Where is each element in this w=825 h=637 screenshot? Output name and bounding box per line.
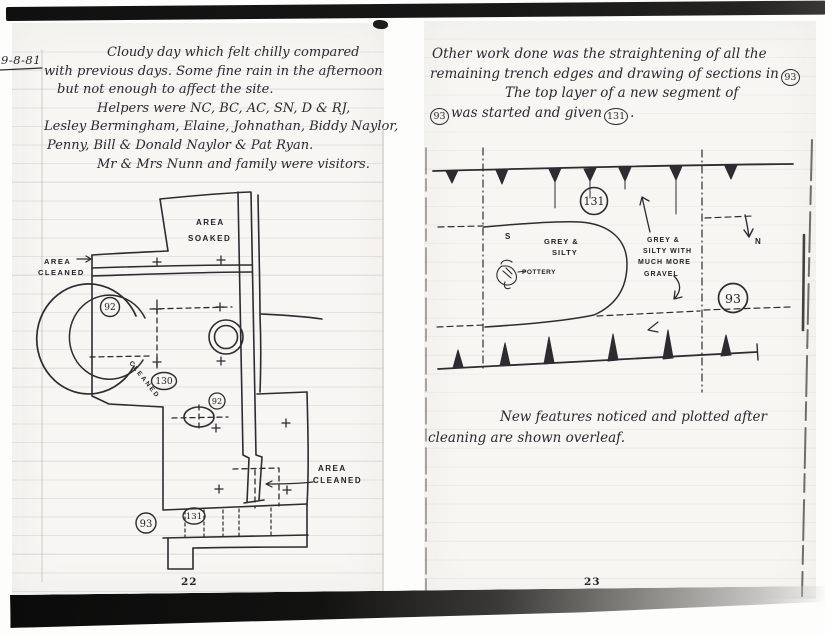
bottom-hachures <box>453 330 731 368</box>
gravel-label: MUCH MORE <box>638 259 691 266</box>
corner-tick <box>648 322 658 332</box>
area-cleaned-left-arrow <box>77 256 91 262</box>
grey-silty-label: SILTY <box>552 248 578 257</box>
feature-93-number: 93 <box>140 519 153 530</box>
area-soaked-label: AREA <box>196 218 225 227</box>
area-cleaned-right-arrow <box>266 481 313 487</box>
gravel-label: GREY & <box>647 237 680 244</box>
feature-130-number: 130 <box>155 377 172 387</box>
feature-131-number-right: 131 <box>584 195 605 208</box>
left-site-plan <box>37 192 322 569</box>
feature-93-number-right: 93 <box>725 291 741 306</box>
s-mark: S <box>505 232 511 241</box>
up-arrow <box>640 197 650 232</box>
area-cleaned-left-label: AREA <box>44 257 71 266</box>
area-cleaned-right-label: CLEANED <box>313 476 362 485</box>
feature-92b-number: 92 <box>212 397 222 406</box>
section-top-line <box>433 164 793 171</box>
gravel-arrow <box>674 276 682 299</box>
area-soaked-label: SOAKED <box>188 234 231 243</box>
page-edges <box>0 50 812 598</box>
plan-outline <box>160 192 250 199</box>
sketch-overlay: AREA SOAKED AREA CLEANED AREA CLEANED CL… <box>0 0 825 637</box>
region-dashed-extensions <box>437 216 790 327</box>
right-plan-labels: S GREY & SILTY GREY & SILTY WITH MUCH MO… <box>505 232 762 278</box>
circular-feature-inner <box>215 326 238 349</box>
north-arrow <box>744 215 753 237</box>
gravel-label: GRAVEL <box>644 271 679 278</box>
north-label: N <box>755 237 762 246</box>
pottery-label: POTTERY <box>522 269 556 276</box>
gravel-label: SILTY WITH <box>643 248 692 255</box>
right-section-sketch <box>433 148 793 392</box>
feature-131-number: 131 <box>186 512 202 522</box>
feature-92-number: 92 <box>104 303 115 313</box>
grey-silty-label: GREY & <box>544 237 579 246</box>
notebook-scan: 9-8-81 Cloudy day which felt chilly comp… <box>0 0 825 637</box>
area-cleaned-left-label: CLEANED <box>38 268 85 277</box>
area-cleaned-right-label: AREA <box>318 464 347 473</box>
left-plan-labels: AREA SOAKED AREA CLEANED AREA CLEANED CL… <box>38 218 362 485</box>
section-bottom-line <box>438 352 757 369</box>
